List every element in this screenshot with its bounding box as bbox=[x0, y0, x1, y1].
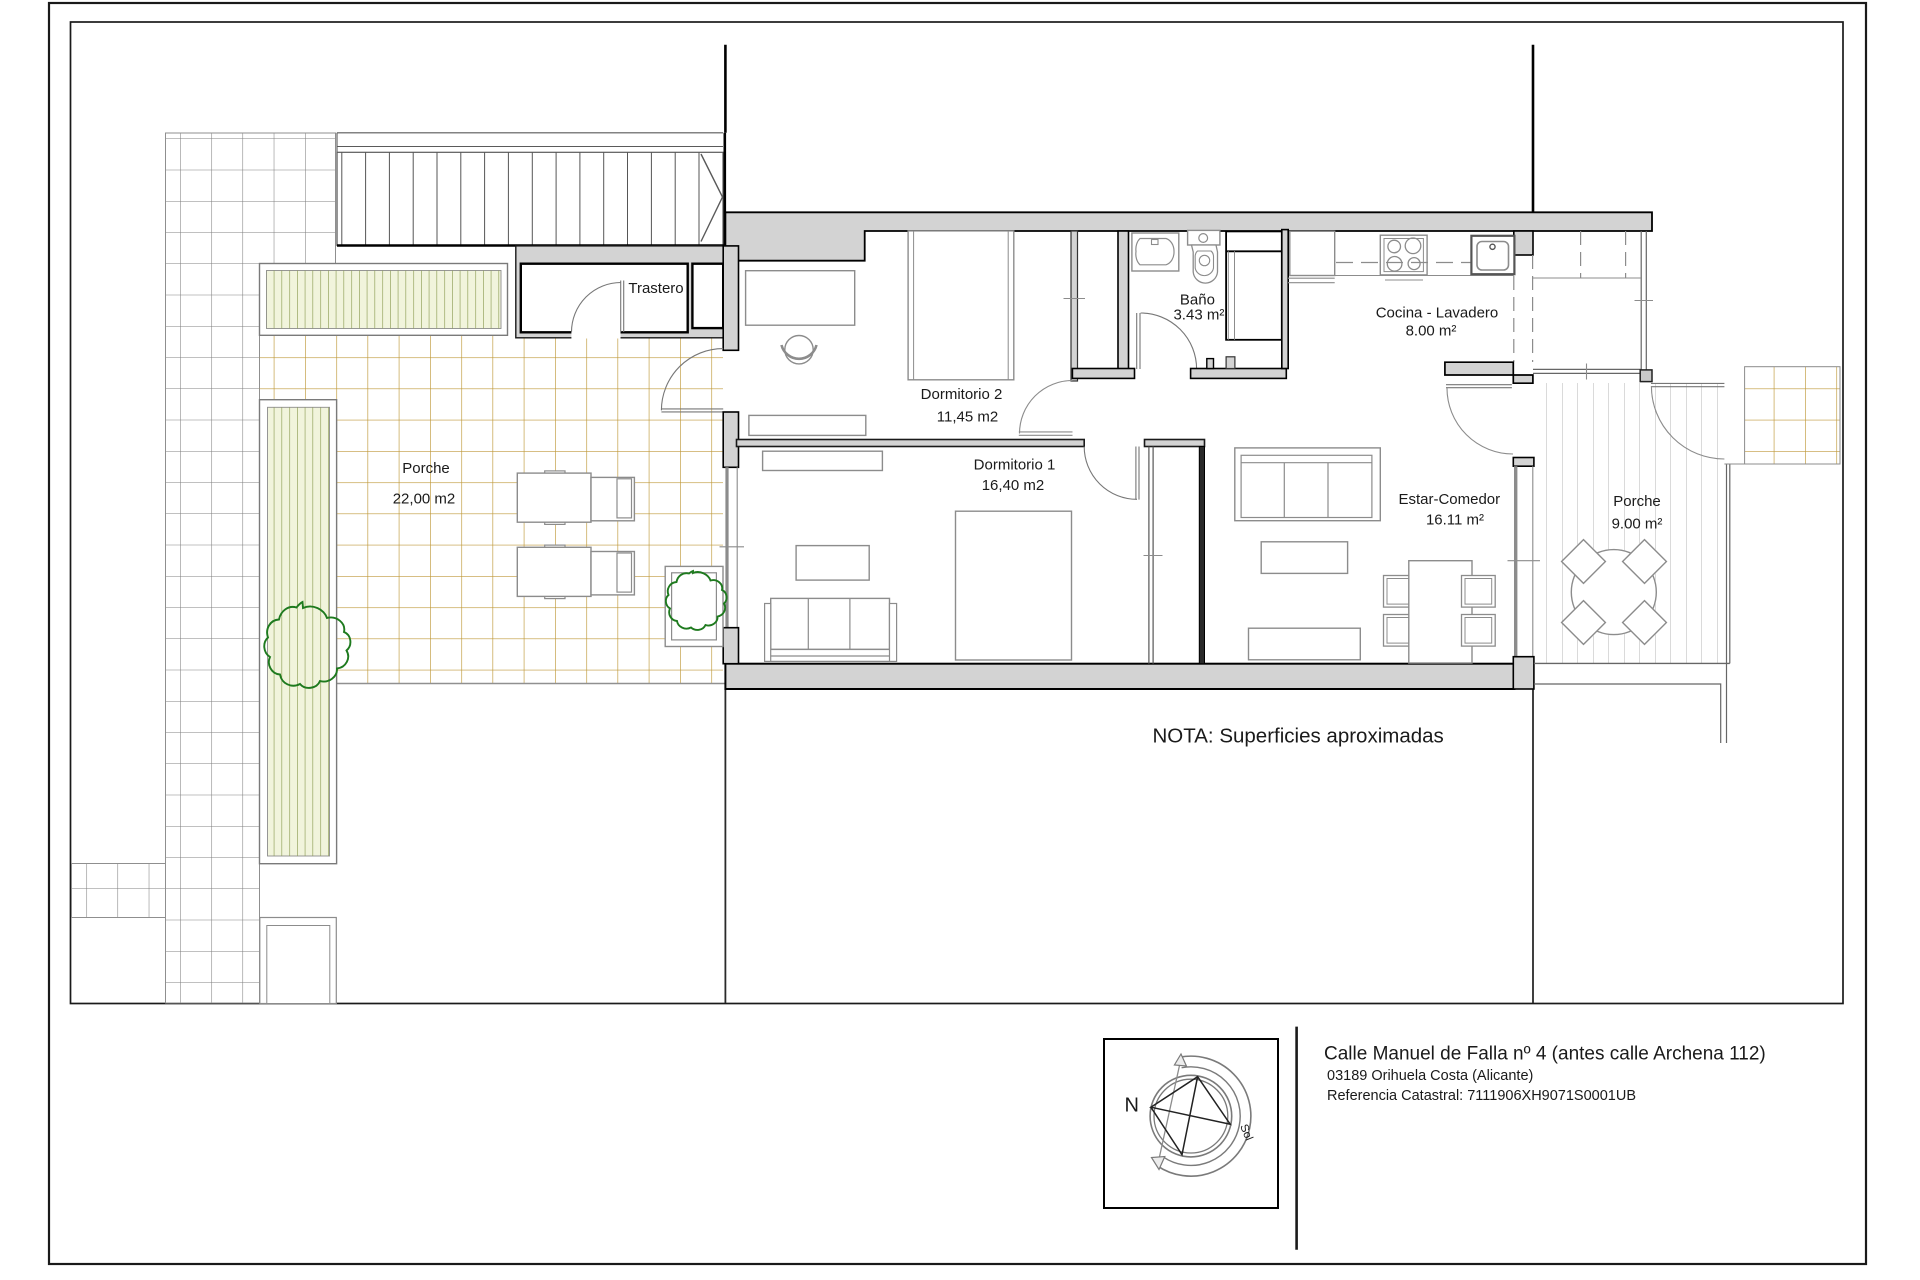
svg-text:Referencia Catastral: 7111906X: Referencia Catastral: 7111906XH9071S0001… bbox=[1327, 1088, 1636, 1104]
svg-text:N: N bbox=[1125, 1095, 1139, 1117]
svg-text:Dormitorio 1: Dormitorio 1 bbox=[974, 457, 1056, 474]
svg-text:Trastero: Trastero bbox=[628, 280, 683, 297]
svg-text:11,45 m2: 11,45 m2 bbox=[937, 409, 998, 426]
svg-text:Dormitorio 2: Dormitorio 2 bbox=[921, 386, 1003, 403]
svg-text:22,00 m2: 22,00 m2 bbox=[393, 491, 456, 508]
svg-text:Cocina - Lavadero: Cocina - Lavadero bbox=[1376, 305, 1499, 322]
svg-text:NOTA: Superficies aproximadas: NOTA: Superficies aproximadas bbox=[1153, 725, 1444, 748]
svg-text:16,40 m2: 16,40 m2 bbox=[982, 477, 1045, 494]
svg-text:Porche: Porche bbox=[1613, 493, 1661, 510]
svg-text:Calle Manuel de Falla nº 4 (an: Calle Manuel de Falla nº 4 (antes calle … bbox=[1324, 1044, 1766, 1065]
svg-text:Estar-Comedor: Estar-Comedor bbox=[1398, 491, 1500, 508]
svg-text:16.11 m²: 16.11 m² bbox=[1426, 512, 1484, 529]
svg-text:3.43 m²: 3.43 m² bbox=[1173, 307, 1224, 324]
svg-text:8.00 m²: 8.00 m² bbox=[1406, 323, 1457, 340]
svg-text:9.00 m²: 9.00 m² bbox=[1612, 516, 1663, 533]
svg-text:03189 Orihuela Costa (Alicante: 03189 Orihuela Costa (Alicante) bbox=[1327, 1068, 1533, 1084]
svg-text:Porche: Porche bbox=[402, 460, 450, 477]
